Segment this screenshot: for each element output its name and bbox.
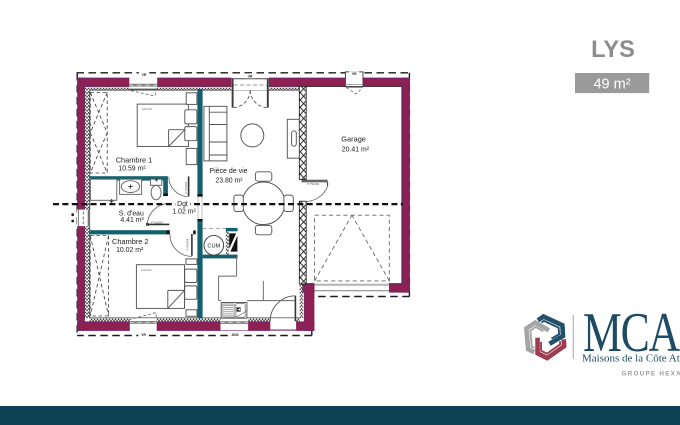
svg-text:VR: VR [352, 72, 357, 76]
svg-text:VR: VR [142, 73, 147, 77]
svg-text:VR: VR [248, 74, 253, 78]
svg-text:4.41 m²: 4.41 m² [120, 217, 144, 224]
svg-text:Chambre 2: Chambre 2 [112, 237, 149, 246]
svg-text:GROUPE HEXAOM: GROUPE HEXAOM [622, 370, 680, 377]
svg-text:1.02 m²: 1.02 m² [172, 208, 196, 215]
svg-text:10.59 m²: 10.59 m² [118, 165, 146, 172]
svg-text:Dgt: Dgt [177, 201, 188, 208]
svg-text:P 75x204: P 75x204 [151, 220, 163, 224]
svg-text:2630: 2630 [231, 333, 238, 337]
svg-text:140x200: 140x200 [141, 268, 152, 272]
svg-text:VR: VR [141, 333, 146, 337]
svg-text:10.02 m²: 10.02 m² [116, 247, 144, 254]
svg-text:LYS: LYS [591, 37, 635, 63]
svg-text:P 75x204: P 75x204 [184, 181, 188, 193]
svg-text:140x200: 140x200 [142, 107, 153, 111]
svg-text:Pièce de vie: Pièce de vie [209, 168, 247, 175]
svg-text:20.41 m²: 20.41 m² [342, 146, 370, 153]
svg-text:P 75x204: P 75x204 [307, 182, 319, 186]
svg-text:CUM: CUM [207, 243, 220, 249]
svg-text:P 75x204: P 75x204 [185, 238, 189, 250]
svg-text:Chambre 1: Chambre 1 [116, 156, 153, 165]
svg-text:49 m²: 49 m² [593, 76, 630, 92]
svg-text:23.80 m²: 23.80 m² [215, 177, 243, 184]
svg-text:Garage: Garage [341, 135, 366, 144]
svg-text:Maisons de la Côte Atlantique: Maisons de la Côte Atlantique [582, 353, 680, 365]
